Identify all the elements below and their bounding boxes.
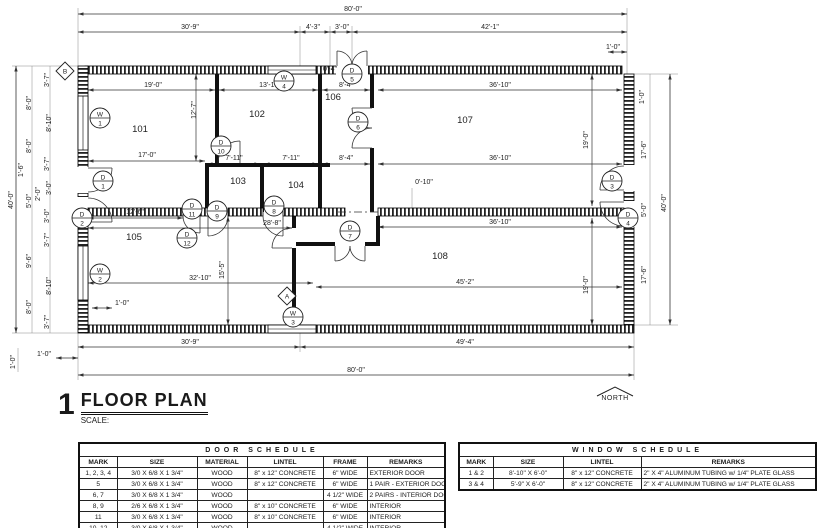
extension-lines	[12, 8, 678, 380]
door-symbol-d12: D12	[177, 228, 197, 248]
door-schedule-title: DOOR SCHEDULE	[79, 443, 445, 457]
window-symbol-w3: W3	[283, 307, 303, 327]
door-letter: D	[356, 116, 361, 123]
window-number: 3	[291, 320, 295, 327]
dim-label: 9'-6"	[26, 254, 33, 268]
dim-label: 0'-4"	[323, 66, 337, 73]
schedule-cell: 5	[79, 479, 117, 490]
dim-label: 12'-6"	[126, 209, 144, 216]
window-symbol-w2: W2	[90, 264, 110, 284]
section-marker-letter: A	[285, 294, 290, 301]
dim-label: 17'-6"	[641, 266, 648, 284]
dim-label: 30'-9"	[181, 24, 199, 31]
schedule-cell: 8" x 12" CONCRETE	[247, 479, 323, 490]
door-letter: D	[272, 200, 277, 207]
column-header: MATERIAL	[197, 457, 247, 468]
dim-label: 12'-7"	[191, 101, 198, 119]
dim-label: 3'-7"	[44, 233, 51, 247]
north-arrow: NORTH	[597, 387, 633, 402]
schedule-cell: 4 1/2" WIDE	[323, 490, 367, 501]
window-schedule-title: WINDOW SCHEDULE	[459, 443, 816, 457]
schedule-cell: INTERIOR	[367, 501, 445, 512]
door-number: 10	[217, 149, 225, 156]
dim-label: 8'-0"	[26, 300, 33, 314]
dim-label: 3'-7"	[44, 73, 51, 87]
window-number: 2	[98, 277, 102, 284]
dim-label: 3'-0"	[335, 24, 349, 31]
door-letter: D	[101, 175, 106, 182]
door-number: 12	[183, 241, 191, 248]
walls	[78, 66, 634, 333]
window-letter: W	[97, 268, 104, 275]
schedule-cell: WOOD	[197, 512, 247, 523]
schedule-cell: 1, 2, 3, 4	[79, 468, 117, 479]
table-row: 1 & 28'-10" X 6'-0"8" x 12" CONCRETE2" X…	[459, 468, 816, 479]
door-symbols: D1 D2 D3 D4 D5 D6 D7 D8 D9 D10 D11 D12	[72, 64, 638, 248]
dim-label: 40'-0"	[661, 194, 668, 212]
column-header: MARK	[79, 457, 117, 468]
door-letter: D	[215, 205, 220, 212]
schedule-cell: 8" x 10" CONCRETE	[247, 512, 323, 523]
dim-label: 17'-0"	[138, 152, 156, 159]
dim-label: 3'-0"	[44, 209, 51, 223]
schedule-cell: 6" WIDE	[323, 501, 367, 512]
dim-label: 3'-0"	[46, 181, 53, 195]
door-schedule-table: DOOR SCHEDULE MARK SIZE MATERIAL LINTEL …	[78, 442, 446, 528]
schedule-cell: INTERIOR	[367, 523, 445, 528]
schedule-cell: 8" x 10" CONCRETE	[247, 501, 323, 512]
door-symbol-d6: D6	[348, 112, 368, 132]
window-number: 4	[282, 84, 286, 91]
door-symbol-d4: D4	[618, 208, 638, 228]
window-letter: W	[97, 112, 104, 119]
schedule-cell: 8" x 12" CONCRETE	[247, 468, 323, 479]
drawing-sheet: 80'-0" 30'-9" 4'-3" 3'-0" 42'-1" 1'-0" 1…	[0, 0, 818, 528]
dim-label: 36'-10"	[489, 82, 511, 89]
door-symbol-d11: D11	[182, 199, 202, 219]
column-header: SIZE	[117, 457, 197, 468]
dim-label: 40'-0"	[8, 191, 15, 209]
schedule-cell: 2/6 X 6/8 X 1 3/4"	[117, 501, 197, 512]
schedule-cell: 3/0 X 6/8 X 1 3/4"	[117, 523, 197, 528]
schedule-cell	[247, 490, 323, 501]
dim-label: 42'-1"	[481, 24, 499, 31]
column-header: SIZE	[493, 457, 563, 468]
door-number: 1	[101, 184, 105, 191]
door-letter: D	[185, 232, 190, 239]
column-header: FRAME	[323, 457, 367, 468]
dim-label: 8'-10"	[46, 277, 53, 295]
schedule-cell: 6" WIDE	[323, 479, 367, 490]
dim-label: 28'-8"	[263, 220, 281, 227]
door-symbol-d7: D7	[340, 221, 360, 241]
dim-label: 7'-11"	[282, 155, 300, 162]
dim-label: 1'-6"	[18, 163, 25, 177]
drawing-title: FLOOR PLAN	[81, 390, 208, 415]
table-row: 1, 2, 3, 43/0 X 6/8 X 1 3/4"WOOD8" x 12"…	[79, 468, 445, 479]
dim-label: 19'-0"	[583, 131, 590, 149]
dim-label: 36'-10"	[489, 155, 511, 162]
schedule-cell: 5'-9" X 6'-0"	[493, 479, 563, 491]
dim-label: 5'-0"	[26, 194, 33, 208]
door-symbol-d8: D8	[264, 196, 284, 216]
schedule-cell: 2 PAIRS - INTERIOR DOORS	[367, 490, 445, 501]
table-row: 3 & 45'-9" X 6'-0"8" x 12" CONCRETE2" X …	[459, 479, 816, 491]
schedule-cell: 4 1/2" WIDE	[323, 523, 367, 528]
schedule-cell: 1 & 2	[459, 468, 493, 479]
door-symbol-d10: D10	[211, 136, 231, 156]
door-letter: D	[80, 212, 85, 219]
schedule-cell: 6, 7	[79, 490, 117, 501]
dim-label: 49'-4"	[456, 339, 474, 346]
room-label-103: 103	[230, 176, 246, 187]
column-header: LINTEL	[563, 457, 641, 468]
schedule-cell: WOOD	[197, 479, 247, 490]
door-number: 4	[626, 221, 630, 228]
dim-label: 5'-0"	[641, 203, 648, 217]
north-label: NORTH	[601, 395, 628, 402]
schedule-cell: 3/0 X 6/8 X 1 3/4"	[117, 512, 197, 523]
section-marker-b: B	[56, 62, 74, 80]
door-symbol-d5: D5	[342, 64, 362, 84]
schedule-cell: 3 & 4	[459, 479, 493, 491]
table-row: 8, 92/6 X 6/8 X 1 3/4"WOOD8" x 10" CONCR…	[79, 501, 445, 512]
door-letter: D	[626, 212, 631, 219]
room-label-107: 107	[457, 115, 473, 126]
door-letter: D	[610, 175, 615, 182]
floor-plan-drawing: 80'-0" 30'-9" 4'-3" 3'-0" 42'-1" 1'-0" 1…	[0, 0, 818, 440]
dim-label: 32'-10"	[189, 275, 211, 282]
door-number: 6	[356, 125, 360, 132]
window-letter: W	[281, 75, 288, 82]
room-label-106: 106	[325, 92, 341, 103]
schedule-cell: 6" WIDE	[323, 468, 367, 479]
dim-label: 4'-3"	[306, 24, 320, 31]
schedule-cell: 2" X 4" ALUMINUM TUBING w/ 1/4" PLATE GL…	[641, 468, 816, 479]
door-symbol-d3: D3	[602, 171, 622, 191]
schedule-cell: 8" x 12" CONCRETE	[563, 479, 641, 491]
dim-label: 8'-10"	[46, 114, 53, 132]
dim-label: 8'-4"	[339, 155, 353, 162]
schedule-cell: WOOD	[197, 490, 247, 501]
door-letter: D	[350, 68, 355, 75]
door-number: 3	[610, 184, 614, 191]
dim-label: 19'-0"	[144, 82, 162, 89]
door-number: 9	[215, 214, 219, 221]
table-row: 113/0 X 6/8 X 1 3/4"WOOD8" x 10" CONCRET…	[79, 512, 445, 523]
door-letter: D	[190, 203, 195, 210]
window-symbol-w1: W1	[90, 108, 110, 128]
table-row: 53/0 X 6/8 X 1 3/4"WOOD8" x 12" CONCRETE…	[79, 479, 445, 490]
dim-label: 19'-0"	[583, 276, 590, 294]
schedule-cell: INTERIOR	[367, 512, 445, 523]
dim-label: 8'-0"	[26, 139, 33, 153]
schedule-cell: 6" WIDE	[323, 512, 367, 523]
schedule-cell: 2" X 4" ALUMINUM TUBING w/ 1/4" PLATE GL…	[641, 479, 816, 491]
schedule-cell: 8, 9	[79, 501, 117, 512]
dim-label: 8'-0"	[26, 96, 33, 110]
schedule-cell: 8'-10" X 6'-0"	[493, 468, 563, 479]
door-symbol-d9: D9	[207, 201, 227, 221]
column-header: MARK	[459, 457, 493, 468]
room-label-102: 102	[249, 109, 265, 120]
schedule-cell: 3/0 X 6/8 X 1 3/4"	[117, 490, 197, 501]
schedule-cell: 11	[79, 512, 117, 523]
dim-label: 2'-0"	[35, 187, 42, 201]
drawing-title-block: 1 FLOOR PLAN SCALE:	[58, 390, 208, 425]
dim-label: 3'-7"	[44, 315, 51, 329]
schedule-cell: 3/0 X 6/8 X 1 3/4"	[117, 468, 197, 479]
window-number: 1	[98, 121, 102, 128]
room-label-108: 108	[432, 251, 448, 262]
schedule-cell: WOOD	[197, 468, 247, 479]
schedule-cell: 1 PAIR - EXTERIOR DOOR	[367, 479, 445, 490]
room-label-105: 105	[126, 232, 142, 243]
dim-label: 1'-0"	[115, 300, 129, 307]
dim-label: 1'-0"	[606, 44, 620, 51]
section-marker-letter: B	[63, 69, 67, 76]
wall-openings	[77, 65, 635, 333]
window-symbol-w4: W4	[274, 71, 294, 91]
drawing-scale-label: SCALE:	[81, 416, 208, 425]
dim-label: 15'-5"	[219, 261, 226, 279]
schedule-cell: WOOD	[197, 523, 247, 528]
room-label-104: 104	[288, 180, 304, 191]
dim-label: 0'-10"	[415, 179, 433, 186]
dim-label: 1'-0"	[10, 355, 17, 369]
schedule-cell: EXTERIOR DOOR	[367, 468, 445, 479]
window-schedule-table: WINDOW SCHEDULE MARK SIZE LINTEL REMARKS…	[458, 442, 817, 491]
column-header: REMARKS	[641, 457, 816, 468]
dim-label: 1'-0"	[37, 351, 51, 358]
dim-label: 3'-7"	[44, 157, 51, 171]
schedule-cell: 8" x 12" CONCRETE	[563, 468, 641, 479]
dim-label: 36'-10"	[489, 219, 511, 226]
door-letter: D	[219, 140, 224, 147]
door-number: 11	[189, 212, 196, 219]
schedule-cell: 10, 12	[79, 523, 117, 528]
schedule-cell: 3/0 X 6/8 X 1 3/4"	[117, 479, 197, 490]
dim-label: 17'-6"	[641, 141, 648, 159]
dim-label: 80'-0"	[347, 367, 365, 374]
door-number: 5	[350, 77, 354, 84]
door-symbol-d2: D2	[72, 208, 92, 228]
door-letter: D	[348, 225, 353, 232]
door-number: 7	[348, 234, 352, 241]
column-header: LINTEL	[247, 457, 323, 468]
table-row: 6, 73/0 X 6/8 X 1 3/4"WOOD4 1/2" WIDE2 P…	[79, 490, 445, 501]
schedule-cell	[247, 523, 323, 528]
drawing-number: 1	[58, 390, 75, 420]
room-label-101: 101	[132, 124, 148, 135]
window-letter: W	[290, 311, 297, 318]
table-row: 10, 123/0 X 6/8 X 1 3/4"WOOD4 1/2" WIDEI…	[79, 523, 445, 528]
door-number: 2	[80, 221, 84, 228]
dim-label: 30'-9"	[181, 339, 199, 346]
schedule-cell: WOOD	[197, 501, 247, 512]
column-header: REMARKS	[367, 457, 445, 468]
door-number: 8	[272, 209, 276, 216]
dim-label: 7'-11"	[225, 155, 243, 162]
dim-label: 80'-0"	[344, 6, 362, 13]
door-symbol-d1: D1	[93, 171, 113, 191]
dim-label: 45'-2"	[456, 279, 474, 286]
dim-label: 1'-0"	[639, 90, 646, 104]
